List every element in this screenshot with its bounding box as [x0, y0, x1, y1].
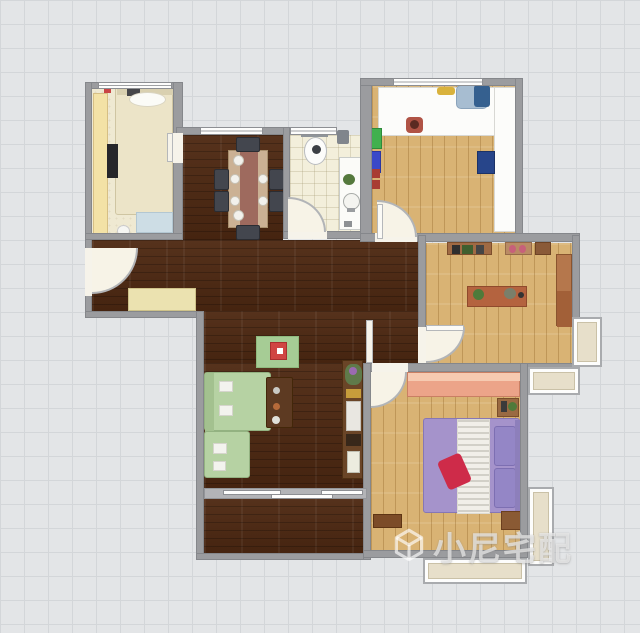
bath-vanity — [339, 157, 362, 230]
vanity-plant — [343, 174, 355, 185]
sofa-pillow — [213, 461, 226, 471]
tv-cabinet — [342, 360, 363, 479]
sofa-pillow — [219, 405, 233, 416]
nightstand-item — [501, 401, 507, 412]
tearoom-door-opening — [418, 327, 426, 363]
plate — [258, 196, 268, 206]
nightstand-plant — [508, 402, 517, 411]
shelf — [535, 242, 551, 255]
wall — [360, 78, 372, 240]
bed-pillow — [129, 92, 166, 107]
table-plant — [504, 288, 516, 299]
small-chair — [406, 117, 423, 133]
plate — [258, 174, 268, 184]
cabinet-bottle — [347, 451, 360, 473]
wall — [515, 78, 523, 240]
sofa-pillow — [219, 381, 233, 392]
sofa-pillow — [213, 443, 227, 454]
shelf-item — [476, 245, 484, 254]
sofa — [204, 372, 271, 431]
table-item — [272, 416, 280, 424]
entry-door-opening — [85, 248, 92, 296]
table-cup — [518, 292, 524, 298]
wall — [85, 311, 204, 318]
office-chair-back — [474, 85, 490, 107]
wall — [196, 553, 371, 560]
master-door-opening — [372, 363, 408, 372]
table-plant — [473, 289, 484, 300]
dining-chair — [269, 169, 284, 190]
wall — [196, 311, 204, 560]
dining-chair — [236, 137, 260, 152]
sliding-panel — [321, 490, 363, 495]
wall — [520, 363, 528, 558]
dining-chair — [214, 169, 229, 190]
hall-floor — [183, 240, 418, 311]
tea-table — [467, 286, 527, 307]
cabinet-shelf — [346, 401, 361, 431]
shelf-item — [452, 245, 460, 254]
dining-chair — [269, 191, 284, 212]
dining-table — [228, 150, 268, 228]
bay-window — [528, 367, 580, 395]
plate — [230, 196, 240, 206]
small-chair-pad — [410, 120, 419, 129]
side-cabinet-lower — [557, 291, 573, 327]
nightstand — [501, 511, 521, 530]
rug-item-dot — [277, 348, 283, 354]
vanity-faucet — [347, 208, 355, 212]
shoe-cabinet — [128, 288, 196, 311]
toilet-bowl — [304, 137, 327, 165]
wall — [363, 550, 528, 558]
shelf-item — [509, 245, 516, 253]
study-door-leaf — [377, 204, 383, 239]
master-wardrobe — [407, 372, 520, 397]
window — [393, 78, 483, 86]
cabinet-plant-flower — [349, 367, 357, 375]
hall-floor-lower — [204, 311, 418, 363]
floor-plan-canvas: 小尼宅配 — [0, 0, 640, 633]
tearoom-door-leaf — [426, 325, 464, 331]
bed-pillow — [494, 468, 516, 508]
shower-head — [337, 130, 349, 144]
wall — [363, 363, 371, 560]
dining-chair — [214, 191, 229, 212]
shelf — [505, 242, 532, 255]
bay-window — [572, 317, 602, 367]
wardrobe — [93, 93, 108, 235]
nightstand — [497, 398, 519, 417]
shelf — [447, 242, 492, 255]
shelf-item — [462, 245, 473, 254]
sofa-back — [205, 373, 214, 432]
plate — [230, 174, 240, 184]
table-item — [273, 387, 280, 394]
coffee-table — [266, 377, 293, 428]
window — [98, 82, 172, 89]
tv — [107, 144, 118, 178]
rug-item — [270, 342, 287, 360]
desk-item-yellow — [437, 87, 455, 95]
balcony-floor — [204, 498, 367, 553]
desk-side — [494, 87, 516, 232]
dining-chair — [236, 225, 260, 240]
plate — [233, 155, 244, 166]
bed-end-bench — [373, 514, 402, 528]
bathroom-door-opening — [288, 231, 327, 239]
wardrobe-strip — [408, 373, 521, 381]
cabinet-item-yellow — [346, 389, 361, 398]
bedroom-door-opening — [173, 133, 183, 163]
bed-pillow — [494, 426, 516, 466]
bed-bench — [136, 212, 173, 233]
cabinet-item-dark — [346, 434, 361, 446]
wall — [85, 233, 183, 240]
window — [290, 127, 337, 135]
laptop — [477, 151, 495, 174]
sliding-door — [204, 488, 367, 499]
toilet-lid — [312, 145, 321, 154]
window — [200, 127, 263, 135]
vanity-item — [344, 221, 352, 227]
plate — [233, 210, 244, 221]
single-bed — [115, 86, 173, 215]
bay-window — [423, 558, 527, 584]
shelf-item — [519, 245, 526, 253]
office-chair — [456, 85, 488, 109]
side-cabinet — [556, 254, 572, 326]
bay-window — [528, 487, 554, 566]
master-door-leaf — [366, 320, 373, 363]
master-bed — [423, 418, 520, 513]
table-item — [273, 403, 280, 410]
bedroom-door-leaf — [167, 133, 173, 162]
sofa-chaise — [204, 431, 250, 478]
